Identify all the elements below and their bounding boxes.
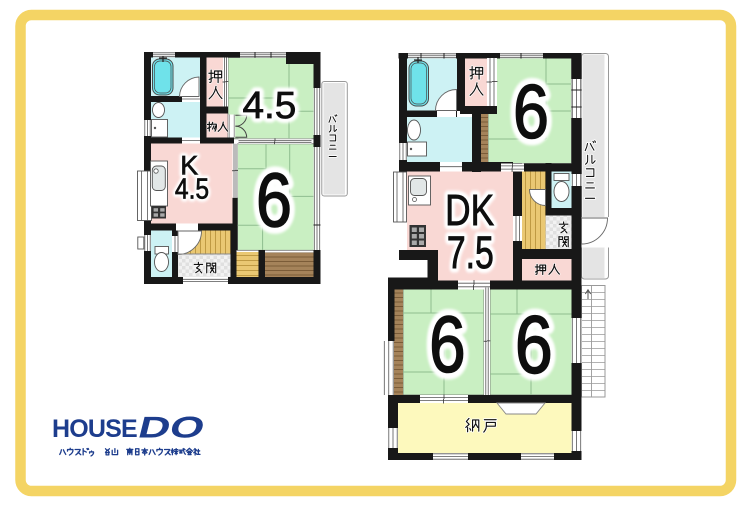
svg-text:HOUSE: HOUSE bbox=[52, 415, 137, 443]
svg-text:6: 6 bbox=[513, 69, 549, 154]
svg-text:DO: DO bbox=[135, 410, 209, 443]
svg-text:4.5: 4.5 bbox=[175, 173, 209, 205]
svg-text:6: 6 bbox=[256, 158, 292, 243]
svg-text:4.5: 4.5 bbox=[242, 84, 296, 127]
svg-text:6: 6 bbox=[429, 299, 465, 389]
svg-text:7.5: 7.5 bbox=[447, 228, 494, 278]
svg-text:6: 6 bbox=[515, 298, 553, 389]
